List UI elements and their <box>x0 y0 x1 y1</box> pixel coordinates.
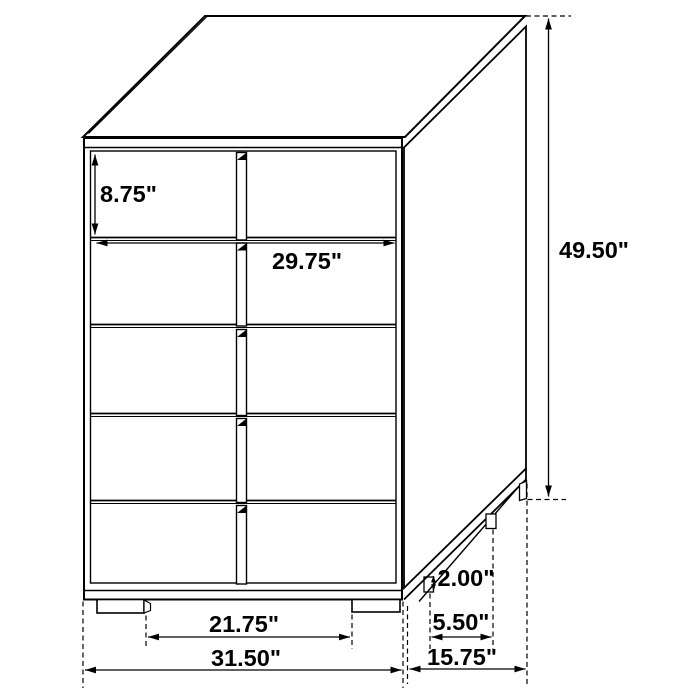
dim-overall-height: 49.50" <box>549 19 629 497</box>
side-back-foot <box>520 481 527 501</box>
drawer-handles <box>237 153 247 585</box>
chest-front-face <box>84 138 402 600</box>
dimension-label-drawer-width: 29.75" <box>272 248 342 274</box>
drawer-handle-2 <box>237 243 247 326</box>
dimension-diagram-canvas: 8.75" 29.75" 49.50" 2.00" 5.50" 21.75" <box>0 0 700 700</box>
dimension-label-top-drawer-height: 8.75" <box>100 181 157 207</box>
side-mid-foot <box>486 514 496 529</box>
dim-side-foot-spacing: 5.50" <box>432 609 492 637</box>
front-right-foot <box>352 600 400 613</box>
dimension-label-front-foot-spacing: 21.75" <box>209 611 279 637</box>
dimension-label-overall-width: 31.50" <box>211 645 281 671</box>
drawer-handle-4 <box>237 419 247 503</box>
dim-foot-height: 2.00" <box>434 565 495 591</box>
chest-drawing <box>83 16 527 614</box>
dim-front-foot-spacing: 21.75" <box>148 611 350 637</box>
dim-overall-width: 31.50" <box>85 645 402 671</box>
drawer-handle-3 <box>237 330 247 416</box>
dimension-label-foot-height: 2.00" <box>438 565 495 591</box>
drawer-handle-5 <box>237 506 247 585</box>
dimension-label-overall-height: 49.50" <box>559 237 629 263</box>
front-left-foot-side <box>144 600 151 613</box>
drawer-handle-1 <box>237 153 247 241</box>
front-left-foot <box>97 600 144 614</box>
dimension-label-side-foot-spacing: 5.50" <box>433 609 490 635</box>
chest-dimension-diagram: 8.75" 29.75" 49.50" 2.00" 5.50" 21.75" <box>0 0 700 700</box>
dimension-label-overall-depth: 15.75" <box>427 644 497 670</box>
dim-overall-depth: 15.75" <box>410 644 526 670</box>
